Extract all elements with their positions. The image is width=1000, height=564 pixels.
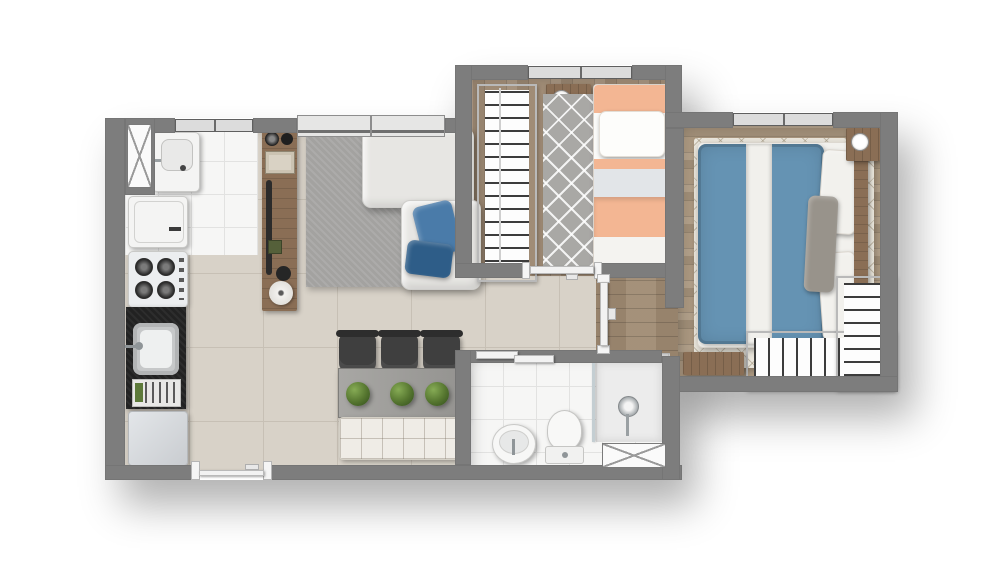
wardrobe-divider	[499, 88, 501, 266]
laundry-sink	[152, 132, 200, 192]
shower-glass-partition	[592, 362, 595, 442]
decor-box	[268, 240, 282, 254]
kitchen-faucet-base	[135, 342, 143, 350]
wall-bedroom1-left	[455, 65, 472, 278]
washing-machine	[128, 196, 188, 248]
bedroom1-single-bed	[593, 84, 670, 270]
wall-bedroom1-bottom-west	[455, 263, 528, 278]
bathroom-washbasin	[492, 424, 536, 464]
burner	[157, 258, 175, 276]
wood-sideboard	[262, 128, 297, 311]
wall-bedroom2-top-west	[665, 112, 733, 128]
wall-left	[105, 118, 125, 480]
entry-door-jamb	[263, 461, 272, 480]
floor-plan	[0, 0, 1000, 564]
decor-bowl	[276, 266, 291, 281]
bedroom2-window	[733, 113, 833, 126]
bedroom1-door-handle	[566, 274, 578, 280]
laundry-sink-drain	[180, 165, 186, 171]
kitchen-window	[175, 119, 253, 132]
potted-plant	[390, 382, 414, 406]
wall-bottom-west	[105, 465, 193, 480]
burner	[157, 281, 175, 299]
kitchen-sink	[133, 323, 179, 375]
dish-rack	[132, 379, 181, 407]
refrigerator	[128, 411, 188, 466]
entry-door-handle	[245, 464, 259, 470]
potted-plant	[346, 382, 370, 406]
bedroom1-window	[528, 66, 632, 79]
dish-rack-green-item	[135, 383, 143, 402]
bed1-peach-blanket	[594, 197, 669, 237]
bedroom1-chevron-rug	[543, 94, 600, 268]
kitchen-counter	[126, 307, 186, 409]
wall-bedroom2-right	[880, 112, 898, 392]
bathroom-sliding-door-panel	[514, 355, 554, 363]
shower-hose	[626, 414, 629, 436]
bedroom2-clock	[851, 133, 869, 151]
wall-bedroom2-bottom	[665, 376, 898, 392]
coffee-grinder	[265, 132, 279, 146]
bathroom-hatched-window	[602, 443, 666, 468]
toilet-flush-button	[562, 452, 568, 458]
washer-control-panel	[169, 227, 181, 231]
toilet-bowl	[547, 410, 582, 450]
bedroom2-gray-pillow	[804, 195, 839, 292]
entry-door-leaf	[199, 470, 264, 476]
bedroom2-dresser	[683, 352, 744, 375]
hallway-door-leaf	[600, 282, 608, 346]
wall-bedroom2-left	[665, 128, 684, 308]
bedroom1-door-leaf	[530, 266, 594, 274]
laundry-sink-bowl	[161, 139, 193, 171]
toilet-tank	[545, 446, 584, 464]
potted-plant	[425, 382, 449, 406]
hallway-door-jamb	[597, 345, 610, 354]
burner	[135, 258, 153, 276]
duvet-fold-white-band	[746, 144, 772, 344]
dish-rack-plates	[145, 382, 177, 403]
cooktop-knobs	[179, 258, 184, 300]
kitchen-sink-bowl	[140, 330, 172, 368]
hallway-door-handle	[608, 308, 616, 320]
kettle	[281, 133, 293, 145]
living-window-mullion	[370, 116, 372, 136]
wall-dining-bathroom	[455, 350, 471, 465]
bedroom1-wardrobe	[477, 84, 537, 282]
dining-chair	[339, 334, 376, 372]
washer-lid	[134, 201, 184, 243]
navy-pillow	[404, 239, 454, 278]
burner	[135, 281, 153, 299]
toilet	[545, 410, 582, 462]
bedroom1-door-jamb	[522, 262, 530, 279]
bed1-peach-head-band	[594, 85, 669, 113]
bed1-peach-stripe	[594, 159, 669, 169]
decor-strip	[266, 180, 272, 275]
bathroom-sliding-door-panel	[476, 351, 518, 359]
gas-cooktop	[128, 251, 188, 308]
living-room-window	[297, 115, 445, 137]
serving-tray	[265, 151, 295, 174]
decor-plate	[269, 281, 293, 305]
wall-top-mid	[253, 118, 297, 133]
bed1-gray-sheet	[594, 169, 669, 197]
dining-chair	[381, 334, 418, 372]
bed1-pillow	[599, 111, 665, 157]
dining-bench	[339, 417, 464, 460]
washbasin-faucet	[512, 439, 515, 455]
laundry-hatched-window	[127, 124, 152, 188]
